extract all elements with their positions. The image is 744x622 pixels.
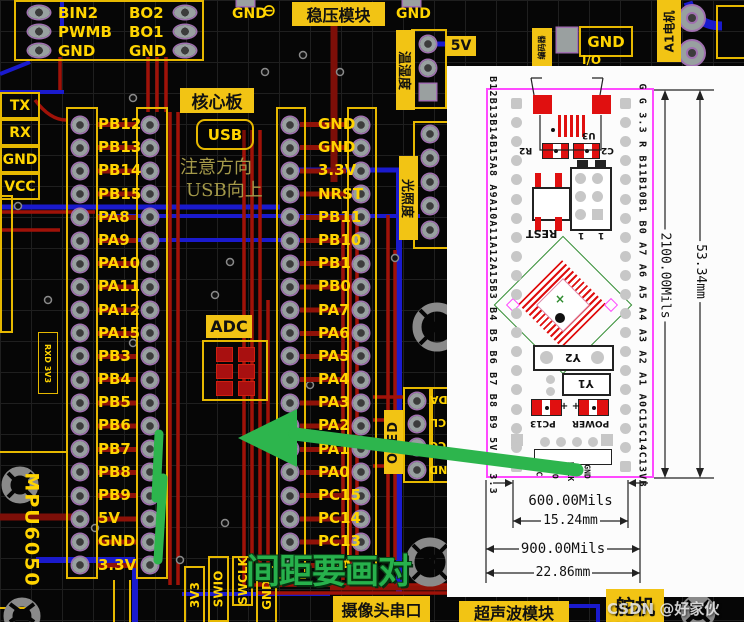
pin-label: PB3 bbox=[98, 345, 138, 368]
pad bbox=[142, 441, 158, 457]
pad bbox=[282, 488, 298, 504]
pad bbox=[620, 117, 631, 128]
pad bbox=[620, 423, 631, 434]
pad bbox=[174, 44, 196, 57]
height-dim-mils: 2100.00Mils bbox=[654, 220, 676, 330]
pin-label: GND bbox=[58, 42, 129, 60]
pad bbox=[142, 209, 158, 225]
pad bbox=[282, 256, 298, 272]
pad bbox=[511, 194, 522, 205]
pad bbox=[620, 308, 631, 319]
pad bbox=[620, 194, 631, 205]
pad bbox=[28, 25, 50, 38]
spacing-annotation: 间距要画对 bbox=[246, 544, 411, 593]
pad bbox=[620, 461, 631, 472]
pad bbox=[282, 140, 298, 156]
pad bbox=[282, 186, 298, 202]
pad bbox=[511, 232, 522, 243]
pin-label: NRST bbox=[318, 183, 362, 206]
pad bbox=[142, 256, 158, 272]
pad bbox=[282, 163, 298, 179]
pin-label: PB7 bbox=[98, 438, 138, 461]
pin-label: PB11 bbox=[318, 206, 362, 229]
pad bbox=[72, 279, 88, 295]
pin-label: PB10 bbox=[318, 229, 362, 252]
pad bbox=[282, 117, 298, 133]
pad bbox=[620, 384, 631, 395]
pad bbox=[282, 233, 298, 249]
pad bbox=[142, 117, 158, 133]
pad bbox=[620, 155, 631, 166]
pin-label: DCLK bbox=[563, 451, 579, 491]
width-dim-2-mm: 22.86mm bbox=[486, 565, 640, 580]
encoder-label: 编码器 bbox=[532, 28, 552, 66]
uart-pin-label: TX bbox=[0, 92, 40, 119]
watermark: CSDN @好家伙VCC bbox=[607, 598, 744, 622]
pin-label: PA1 bbox=[318, 438, 362, 461]
pin-label: PB8 bbox=[98, 461, 138, 484]
pad bbox=[142, 279, 158, 295]
pin-label: PWMB bbox=[58, 23, 129, 41]
width-dim-1-mils: 600.00Mils bbox=[513, 493, 628, 509]
pad bbox=[511, 136, 522, 147]
regulator-module-label: 稳压模块 bbox=[292, 2, 385, 26]
pin-label: PA7 bbox=[318, 299, 362, 322]
pin-label: GND bbox=[129, 42, 174, 60]
ground-symbol-icon: ⊖ bbox=[262, 1, 276, 21]
uart-connector: TXRXGNDVCC bbox=[0, 92, 40, 200]
pin-label: 3.3V bbox=[318, 159, 362, 182]
pin-label: BIN2 bbox=[58, 4, 129, 22]
pad bbox=[72, 511, 88, 527]
pad bbox=[511, 423, 522, 434]
inset-pad-column bbox=[509, 94, 523, 476]
height-dim-mm: 53.34mm bbox=[689, 216, 711, 326]
pin-label: PA8 bbox=[98, 206, 138, 229]
motor-driver-connector: BIN2 BO2 PWMB BO1 GND GND bbox=[14, 0, 204, 61]
pad bbox=[142, 186, 158, 202]
pin-label: PB5 bbox=[98, 391, 138, 414]
pin-label: GND bbox=[579, 451, 595, 491]
adc-label: ADC bbox=[206, 315, 252, 338]
pin-label: PA4 bbox=[318, 368, 362, 391]
pin-label: PA3 bbox=[318, 391, 362, 414]
width-dim-1-mm: 15.24mm bbox=[513, 513, 628, 528]
pad bbox=[142, 488, 158, 504]
pad bbox=[72, 163, 88, 179]
pad bbox=[620, 327, 631, 338]
uart-pin-label: VCC bbox=[0, 173, 40, 200]
pcb-canvas[interactable]: BIN2 BO2 PWMB BO1 GND GND TXRXGNDVCC PB1… bbox=[0, 0, 744, 622]
pin-label: PB6 bbox=[98, 414, 138, 437]
pad bbox=[142, 395, 158, 411]
pad bbox=[511, 213, 522, 224]
rxd-3v3-label: RXD 3V3 bbox=[38, 332, 58, 394]
pad bbox=[282, 279, 298, 295]
pad bbox=[511, 98, 522, 109]
adc-footprint bbox=[202, 340, 268, 401]
pin-label: 3.3V bbox=[98, 554, 138, 577]
pad bbox=[511, 251, 522, 262]
5v-label: 5V bbox=[446, 36, 476, 56]
pin-label: PC14 bbox=[318, 507, 362, 530]
pad bbox=[620, 270, 631, 281]
pad bbox=[282, 395, 298, 411]
pin-label: BO1 bbox=[129, 23, 174, 41]
pad bbox=[511, 404, 522, 415]
pin-label: PB0 bbox=[318, 275, 362, 298]
pin-label: DIO bbox=[547, 451, 563, 491]
pin-label: BO2 bbox=[129, 4, 174, 22]
left-header-labels: PB12PB13PB14PB15PA8PA9PA10PA11PA12PA15PB… bbox=[98, 113, 138, 577]
pad bbox=[511, 289, 522, 300]
pad bbox=[72, 186, 88, 202]
ultrasonic-module-label: 超声波模块 bbox=[459, 601, 569, 622]
pin-label: GND bbox=[318, 136, 362, 159]
pin-label: PA12 bbox=[98, 299, 138, 322]
pin-label: PA2 bbox=[318, 414, 362, 437]
pin-label: GND bbox=[98, 530, 138, 553]
light-sensor-label: 光照度 bbox=[399, 156, 418, 240]
pad bbox=[620, 346, 631, 357]
pad bbox=[511, 461, 522, 472]
pad bbox=[142, 302, 158, 318]
mpu6050-label: MPU6050 bbox=[14, 448, 50, 612]
pad bbox=[620, 174, 631, 185]
pad bbox=[174, 6, 196, 19]
pad bbox=[28, 44, 50, 57]
pad bbox=[72, 348, 88, 364]
pad bbox=[72, 488, 88, 504]
pad bbox=[142, 140, 158, 156]
pad bbox=[511, 384, 522, 395]
pad bbox=[72, 464, 88, 480]
inset-swd-labels: VCDIODCLKGND bbox=[531, 451, 595, 491]
pad bbox=[72, 534, 88, 550]
pad bbox=[142, 418, 158, 434]
pad bbox=[142, 163, 158, 179]
pad bbox=[620, 213, 631, 224]
pin-label: PA10 bbox=[98, 252, 138, 275]
core-board-title: 核心板 bbox=[180, 88, 254, 113]
pad bbox=[620, 136, 631, 147]
pin-label: PC15 bbox=[318, 484, 362, 507]
pad bbox=[142, 348, 158, 364]
pad bbox=[282, 209, 298, 225]
temp-humidity-label: 温湿度 bbox=[396, 30, 415, 110]
io-label: I/O bbox=[582, 53, 601, 67]
pad bbox=[72, 256, 88, 272]
pad bbox=[72, 140, 88, 156]
pad bbox=[282, 511, 298, 527]
pad-column bbox=[279, 113, 301, 577]
pad bbox=[72, 418, 88, 434]
pin-label: PA9 bbox=[98, 229, 138, 252]
pad bbox=[72, 372, 88, 388]
pin-label: PA11 bbox=[98, 275, 138, 298]
pad bbox=[620, 98, 631, 109]
pad-column bbox=[69, 113, 91, 577]
pad bbox=[282, 302, 298, 318]
pad bbox=[72, 117, 88, 133]
pad bbox=[620, 232, 631, 243]
pad bbox=[282, 418, 298, 434]
width-dim-2-mils: 900.00Mils bbox=[486, 541, 640, 557]
pad bbox=[282, 441, 298, 457]
pin-label: PA6 bbox=[318, 322, 362, 345]
pad bbox=[142, 464, 158, 480]
swd-pin-label: 3V3 bbox=[184, 566, 205, 622]
pin-label: GND bbox=[318, 113, 362, 136]
right-header-labels: GNDGND3.3VNRSTPB11PB10PB1PB0PA7PA6PA5PA4… bbox=[304, 113, 362, 577]
pad bbox=[72, 233, 88, 249]
pad bbox=[620, 404, 631, 415]
pad bbox=[142, 325, 158, 341]
pad bbox=[174, 25, 196, 38]
camera-serial-label: 摄像头串口 bbox=[333, 596, 430, 622]
pad bbox=[142, 372, 158, 388]
pad bbox=[620, 442, 631, 453]
pin-label: PA15 bbox=[98, 322, 138, 345]
pad bbox=[72, 209, 88, 225]
pad bbox=[282, 325, 298, 341]
usb-direction-note-line2: USB向上 bbox=[186, 176, 263, 202]
pin-label: PA5 bbox=[318, 345, 362, 368]
oled-label: OLED bbox=[384, 410, 403, 474]
pad-column bbox=[139, 113, 161, 577]
pad bbox=[282, 464, 298, 480]
pad bbox=[620, 365, 631, 376]
pad bbox=[282, 348, 298, 364]
pad bbox=[282, 372, 298, 388]
pin-label: PB14 bbox=[98, 159, 138, 182]
pin-label: PB15 bbox=[98, 183, 138, 206]
pad bbox=[511, 327, 522, 338]
pin-label: PB4 bbox=[98, 368, 138, 391]
pad bbox=[511, 346, 522, 357]
pad bbox=[511, 308, 522, 319]
pad bbox=[72, 302, 88, 318]
pad bbox=[142, 557, 158, 573]
pad bbox=[72, 395, 88, 411]
pad bbox=[28, 6, 50, 19]
inset-pad-column bbox=[618, 94, 632, 476]
pad bbox=[511, 174, 522, 185]
pad bbox=[511, 365, 522, 376]
pad bbox=[620, 251, 631, 262]
motor-a1-label: A1电机 bbox=[657, 0, 681, 62]
pin-label: PB1 bbox=[318, 252, 362, 275]
usb-connector-label: USB bbox=[196, 119, 254, 150]
pin-label: PB9 bbox=[98, 484, 138, 507]
pad bbox=[511, 442, 522, 453]
pin-label: VC bbox=[531, 451, 547, 491]
uart-pin-label: RX bbox=[0, 119, 40, 146]
pad bbox=[142, 534, 158, 550]
pad bbox=[511, 117, 522, 128]
pin-label: 5V bbox=[98, 507, 138, 530]
gnd-label: GND bbox=[396, 6, 431, 22]
swd-pin-label: SWIO bbox=[208, 556, 229, 622]
pad bbox=[511, 270, 522, 281]
pad bbox=[620, 289, 631, 300]
pad bbox=[72, 557, 88, 573]
pad bbox=[72, 325, 88, 341]
pad bbox=[511, 155, 522, 166]
uart-pin-label: GND bbox=[0, 146, 40, 173]
pad bbox=[142, 233, 158, 249]
pin-label: PB13 bbox=[98, 136, 138, 159]
footprint-reference-image: B12B13B14B15A8 A9A10A11A12A15B3 B4 B5 B6… bbox=[447, 66, 744, 597]
pin-label: PA0 bbox=[318, 461, 362, 484]
pin-label: PB12 bbox=[98, 113, 138, 136]
pad bbox=[142, 511, 158, 527]
pad bbox=[72, 441, 88, 457]
